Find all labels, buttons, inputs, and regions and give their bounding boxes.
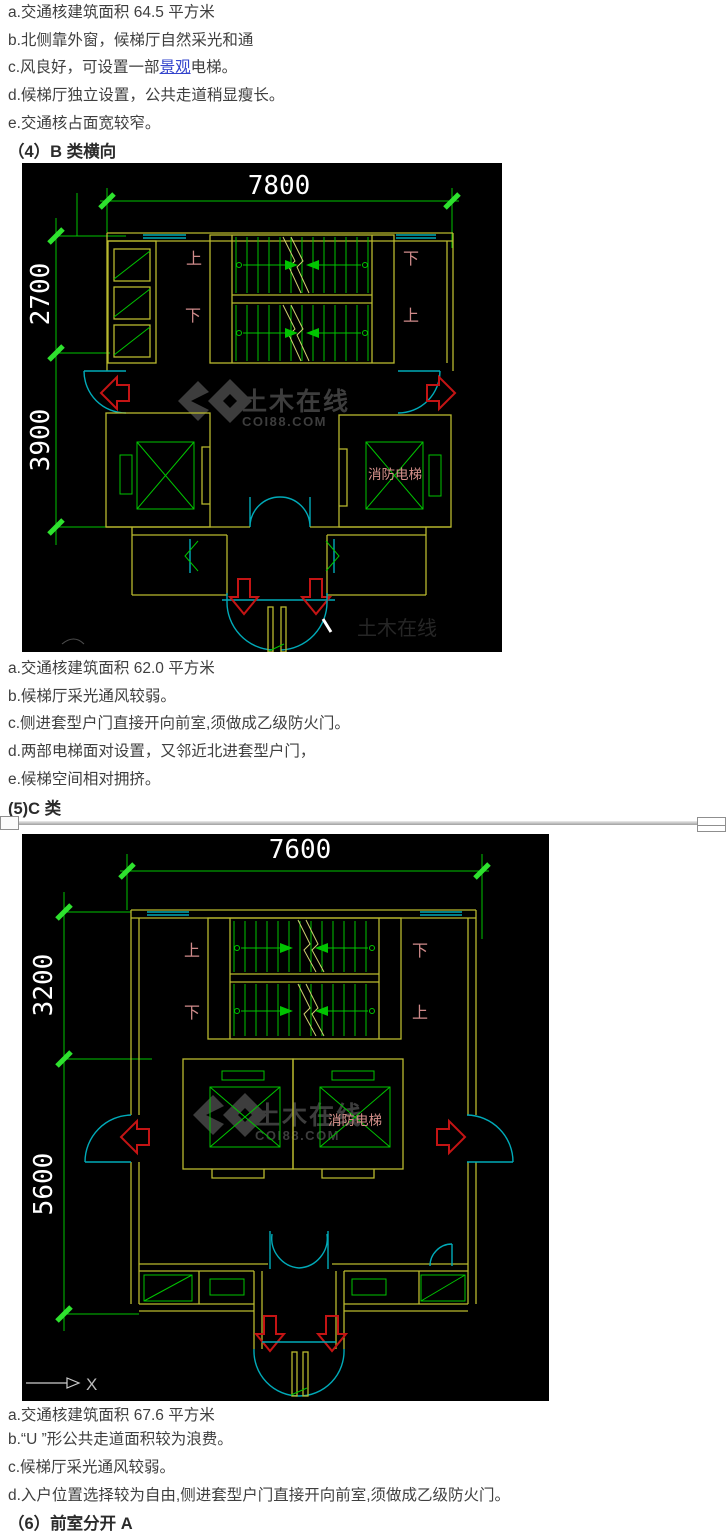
plan-c-stair: 上 下 下 上 [184,918,428,1039]
plan-b-center-door [250,497,310,527]
note-line-d: d.两部电梯面对设置，又邻近北进套型户门， [8,742,315,762]
note-line-c-pre: c.风良好，可设置一部 [8,59,160,76]
divider-left-handle[interactable] [0,816,19,830]
watermark-faint: 土木在线 [357,617,437,640]
plan-c-bottom-rooms [139,1244,468,1311]
plan-b-stair-down-bl: 下 [185,306,201,325]
note-line-c: c.候梯厅采光通风较弱。 [8,1458,175,1478]
plan-c-stair-up-br: 上 [412,1003,428,1022]
plan-c-dim-width: 7600 [269,835,332,865]
note-line-c: c.侧进套型户门直接开向前室,须做成乙级防火门。 [8,714,350,734]
plan-c-elevators: 消防电梯 [183,1059,403,1178]
document-page: a.交通核建筑面积 64.5 平方米 b.北侧靠外窗，候梯厅自然采光和通 c.风… [0,0,726,1540]
watermark-site: COI88.COM [242,414,327,429]
axis-x-label: X [86,1375,97,1394]
watermark-name: 土木在线 [242,387,350,416]
cad-plan-c-drawing: 7600 3200 5600 土木在线 COI88.COM [22,834,549,1401]
cad-plan-b-drawing: 7800 2700 3900 土木在线 COI88.COM 土木在线 [22,163,502,652]
plan-b-stair-down-tr: 下 [403,249,419,268]
note-line-d: d.入户位置选择较为自由,侧进套型户门直接开向前室,须做成乙级防火门。 [8,1486,510,1506]
plan-c-dim-left-upper: 3200 [29,954,59,1017]
jingguan-link[interactable]: 景观 [160,59,191,76]
plan-b-stair: 上 下 下 上 [185,235,419,363]
note-line-b: b.“U ”形公共走道面积较为浪费。 [8,1430,233,1450]
note-line-c: c.风良好，可设置一部景观电梯。 [8,58,237,78]
plan-b-dim-left-lower: 3900 [26,409,56,472]
note-line-c-post: 电梯。 [191,59,238,76]
section-divider [0,821,726,825]
x-axis-icon: X [26,1375,97,1394]
plan-c-stair-down-bl: 下 [184,1003,200,1022]
plan-c-stair-down-tr: 下 [412,941,428,960]
note-line-e: e.候梯空间相对拥挤。 [8,770,160,790]
plan-b-dim-width: 7800 [248,171,311,201]
cad-plan-b-image: 7800 2700 3900 土木在线 COI88.COM 土木在线 [22,163,502,652]
plan-b-elevators: 消防电梯 [106,413,451,527]
plan-b-stair-up-br: 上 [403,306,419,325]
plan-c-entrance [254,1316,346,1396]
plan-b-dim-left-upper: 2700 [26,263,56,326]
fire-elevator-label: 消防电梯 [328,1113,382,1129]
note-line-a: a.交通核建筑面积 67.6 平方米 [8,1406,215,1426]
cad-plan-c-image: 7600 3200 5600 土木在线 COI88.COM [22,834,549,1401]
plan-b-entrance [62,593,331,652]
plan-c-dim-left-lower: 5600 [29,1153,59,1216]
section-heading-b-type: （4）B 类横向 [8,138,116,162]
plan-b-lower-lobby [106,527,451,614]
fire-elevator-label: 消防电梯 [368,467,422,483]
note-line-e: e.交通核占面宽较窄。 [8,114,160,134]
divider-right-handle-line [698,825,725,826]
note-line-a: a.交通核建筑面积 64.5 平方米 [8,3,215,23]
note-line-d: d.候梯厅独立设置，公共走道稍显瘦长。 [8,86,284,106]
note-line-b: b.候梯厅采光通风较弱。 [8,687,176,707]
plan-b-stair-up-tl: 上 [186,249,202,268]
note-line-a: a.交通核建筑面积 62.0 平方米 [8,659,215,679]
note-line-b: b.北侧靠外窗，候梯厅自然采光和通 [8,31,253,51]
section-heading-front-room: （6）前室分开 A [8,1510,133,1534]
divider-right-handle[interactable] [697,817,726,832]
plan-c-stair-up-tl: 上 [184,941,200,960]
